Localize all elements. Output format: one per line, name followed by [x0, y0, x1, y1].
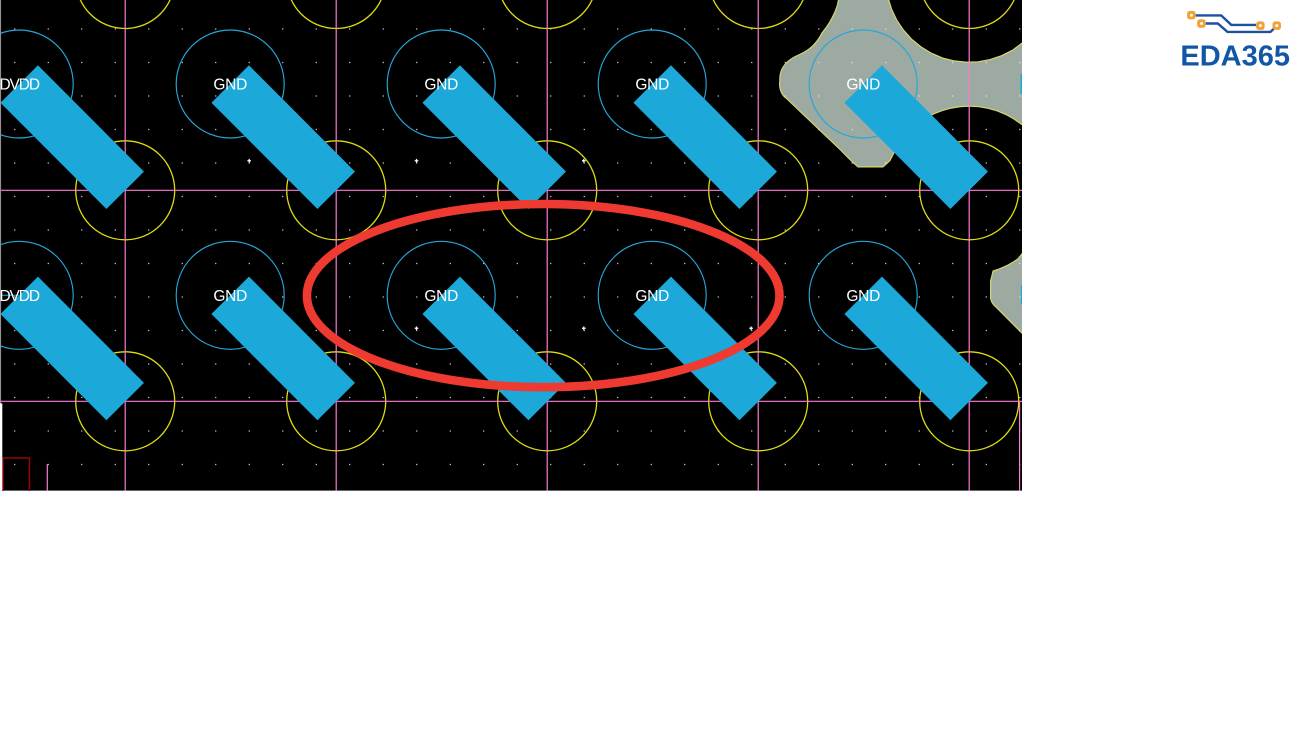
svg-text:GND: GND [424, 288, 458, 305]
svg-text:DVDD: DVDD [0, 77, 40, 94]
svg-text:GND: GND [635, 77, 669, 94]
svg-text:GND: GND [424, 77, 458, 94]
svg-text:GND: GND [635, 288, 669, 305]
svg-text:DVDD: DVDD [0, 288, 40, 305]
svg-text:EDA365: EDA365 [1180, 40, 1290, 72]
svg-text:GND: GND [846, 288, 880, 305]
svg-text:GND: GND [213, 288, 247, 305]
svg-text:GND: GND [213, 77, 247, 94]
svg-text:GND: GND [846, 77, 880, 94]
